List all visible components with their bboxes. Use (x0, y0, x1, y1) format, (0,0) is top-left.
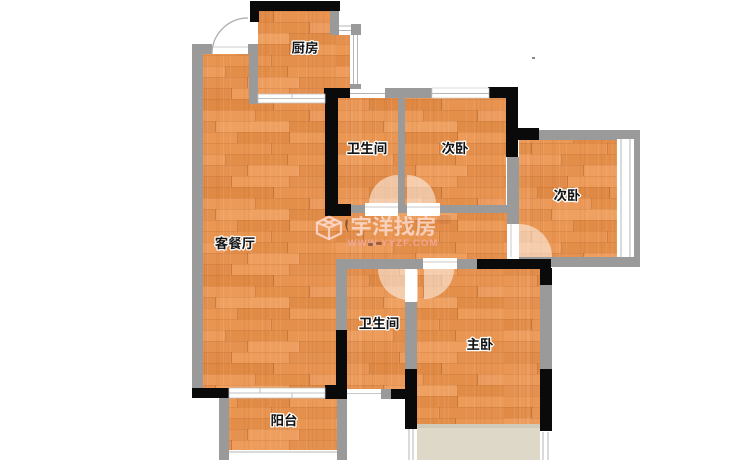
svg-text:WWW.YYZF.COM: WWW.YYZF.COM (347, 238, 438, 249)
